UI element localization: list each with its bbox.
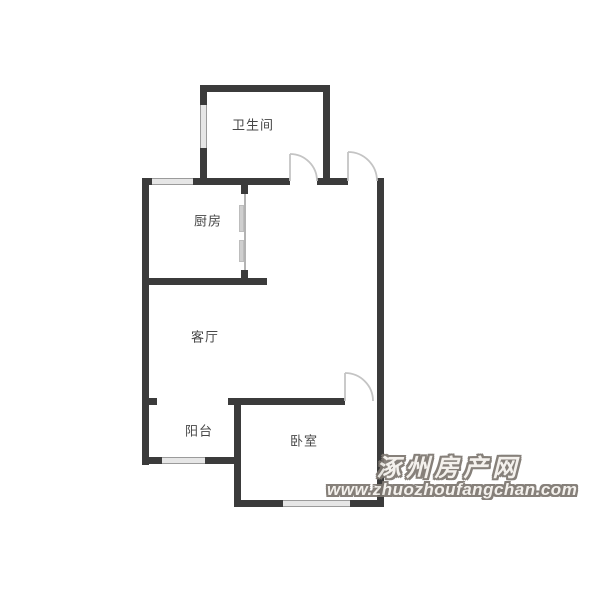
kitchen-door-top-stub	[241, 185, 248, 194]
bathroom-top-wall	[200, 85, 330, 92]
entry-door	[348, 152, 377, 181]
room-label-living-room: 客厅	[191, 327, 219, 346]
room-label-kitchen: 厨房	[194, 211, 222, 230]
balcony-bedroom-divider	[234, 398, 241, 507]
watermark: 涿州房产网 www.zhuozhoufangchan.com	[327, 456, 571, 499]
watermark-site-url: www.zhuozhoufangchan.com	[327, 481, 571, 499]
kitchen-window	[152, 178, 193, 185]
bedroom-top-wall	[228, 398, 345, 405]
floor-plan-canvas: 卫生间厨房客厅阳台卧室 涿州房产网 www.zhuozhoufangchan.c…	[0, 0, 600, 600]
bedroom-window	[283, 500, 350, 507]
bathroom-window	[200, 105, 207, 148]
room-label-bedroom: 卧室	[290, 431, 318, 450]
bedroom-door	[345, 373, 373, 401]
kitchen-sliding-door-track	[244, 194, 246, 270]
watermark-site-name: 涿州房产网	[327, 456, 571, 481]
kitchen-sliding-door-panel-2	[239, 240, 244, 262]
kitchen-bottom-wall	[142, 278, 267, 285]
left-exterior-wall	[142, 178, 149, 465]
kitchen-sliding-door-panel-1	[239, 205, 244, 232]
bathroom-right-wall	[323, 85, 330, 185]
north-wall-mid	[317, 178, 348, 185]
balcony-window	[162, 457, 205, 464]
balcony-left-stub	[142, 398, 157, 405]
bathroom-door	[290, 154, 317, 181]
room-label-balcony: 阳台	[185, 421, 213, 440]
room-label-bathroom: 卫生间	[232, 115, 274, 134]
